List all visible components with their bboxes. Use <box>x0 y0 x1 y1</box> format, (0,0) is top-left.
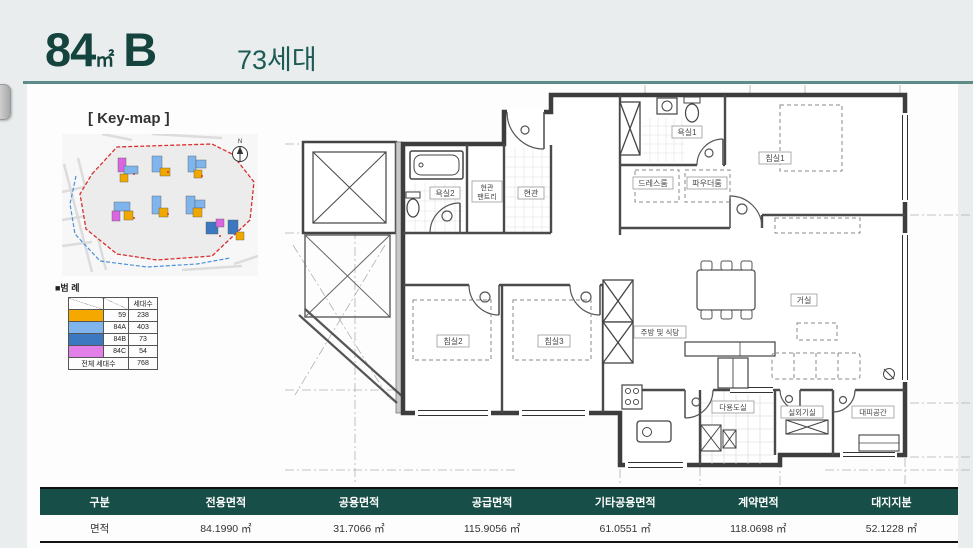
room-label-bedroom3: 침실3 <box>538 335 570 347</box>
room-label-powder-room: 파우더룸 <box>687 177 727 189</box>
households-count: 73세대 <box>237 38 317 77</box>
legend-row-84b: 84B 73 <box>69 334 158 346</box>
legend-col-header: 세대수 <box>129 298 158 310</box>
legend-row-84c: 84C 54 <box>69 346 158 358</box>
keymap-site-plan: N <box>62 134 258 276</box>
area-table: 구분 전용면적 공용면적 공급면적 기타공용면적 계약면적 대지지분 면적 84… <box>40 487 958 543</box>
legend-count: 54 <box>129 346 158 358</box>
svg-text:드레스룸: 드레스룸 <box>638 179 667 188</box>
svg-text:현관: 현관 <box>524 188 539 198</box>
col-header-exclusive-area: 전용면적 <box>159 494 292 510</box>
type-letter: B <box>123 23 157 76</box>
value-land-share: 52.1228 ㎡ <box>825 521 958 536</box>
svg-text:파우더룸: 파우더룸 <box>692 179 721 188</box>
legend-count: 238 <box>129 310 158 322</box>
legend-diagonal-cell2 <box>104 298 129 310</box>
value-supply-area: 115.9056 ㎡ <box>426 521 559 536</box>
legend-swatch-84b <box>69 334 104 346</box>
room-label-dress-room: 드레스룸 <box>633 177 673 189</box>
legend-label: 59 <box>104 310 129 322</box>
value-contract-area: 118.0698 ㎡ <box>692 521 825 536</box>
room-label-bedroom1: 침실1 <box>759 152 791 164</box>
keymap-legend: ■범 례 세대수 59 238 84A 403 84B 73 84C 54 전체 <box>55 281 158 370</box>
legend-label: 84A <box>104 322 129 334</box>
legend-swatch-84c <box>69 346 104 358</box>
legend-row-59: 59 238 <box>69 310 158 322</box>
legend-label: 84B <box>104 334 129 346</box>
legend-diagonal-cell <box>69 298 104 310</box>
area-number: 84 <box>45 23 95 76</box>
room-label-living: 거실 <box>791 294 817 306</box>
svg-text:N: N <box>238 139 242 145</box>
svg-text:주방 및 식당: 주방 및 식당 <box>641 327 680 337</box>
legend-count: 403 <box>129 322 158 334</box>
svg-text:팬트리: 팬트리 <box>477 192 496 201</box>
col-header-category: 구분 <box>40 494 159 510</box>
value-other-common-area: 61.0551 ㎡ <box>559 521 692 536</box>
room-label-kitchen: 주방 및 식당 <box>634 326 686 338</box>
room-label-entry: 현관 <box>518 187 544 199</box>
elevator-core <box>303 142 396 317</box>
legend-table: 세대수 59 238 84A 403 84B 73 84C 54 전체 세대수 … <box>68 297 158 370</box>
page-title: 84㎡B <box>45 22 157 77</box>
legend-total-label: 전체 세대수 <box>69 358 129 370</box>
svg-text:침실3: 침실3 <box>544 336 564 346</box>
room-label-utility: 다용도실 <box>712 401 754 413</box>
col-header-common-area: 공용면적 <box>292 494 425 510</box>
svg-text:현관: 현관 <box>481 183 494 192</box>
room-label-bath2: 욕실2 <box>430 187 460 199</box>
svg-text:욕실2: 욕실2 <box>435 188 455 198</box>
col-header-supply-area: 공급면적 <box>426 494 559 510</box>
floor-plan: 욕실2 현관 팬트리 현관 욕실1 드레스룸 파우더룸 침실1 침 <box>285 85 973 485</box>
carousel-prev-tab[interactable] <box>0 84 11 120</box>
col-header-land-share: 대지지분 <box>825 494 958 510</box>
diagonal-wall <box>299 309 403 403</box>
area-table-header: 구분 전용면적 공용면적 공급면적 기타공용면적 계약면적 대지지분 <box>40 489 958 515</box>
svg-text:거실: 거실 <box>797 295 812 305</box>
room-label-bedroom2: 침실2 <box>437 335 469 347</box>
legend-total-count: 768 <box>129 358 158 370</box>
area-unit: ㎡ <box>95 50 114 71</box>
keymap-title: [ Key-map ] <box>88 110 170 127</box>
row-label-area: 면적 <box>40 521 159 536</box>
room-label-bath1: 욕실1 <box>672 126 702 138</box>
svg-text:실외기실: 실외기실 <box>788 407 816 417</box>
legend-swatch-59 <box>69 310 104 322</box>
dining-table <box>697 261 755 319</box>
legend-row-84a: 84A 403 <box>69 322 158 334</box>
room-label-refuge: 대피공간 <box>852 406 894 418</box>
brochure-page: { "header": { "area_number": "84", "area… <box>0 0 973 548</box>
svg-text:대피공간: 대피공간 <box>859 407 887 417</box>
room-label-ac-room: 실외기실 <box>781 406 823 418</box>
svg-text:욕실1: 욕실1 <box>677 127 697 137</box>
legend-title: ■범 례 <box>55 281 158 294</box>
svg-text:침실1: 침실1 <box>765 153 785 163</box>
value-exclusive-area: 84.1990 ㎡ <box>159 521 292 536</box>
value-common-area: 31.7066 ㎡ <box>292 521 425 536</box>
legend-header-row: 세대수 <box>69 298 158 310</box>
legend-total-row: 전체 세대수 768 <box>69 358 158 370</box>
room-label-entry-pantry: 현관 팬트리 <box>472 181 502 202</box>
area-table-row: 면적 84.1990 ㎡ 31.7066 ㎡ 115.9056 ㎡ 61.055… <box>40 515 958 541</box>
svg-text:다용도실: 다용도실 <box>719 402 747 412</box>
legend-count: 73 <box>129 334 158 346</box>
svg-text:침실2: 침실2 <box>443 336 463 346</box>
col-header-contract-area: 계약면적 <box>692 494 825 510</box>
title-divider-line <box>23 81 973 84</box>
legend-swatch-84a <box>69 322 104 334</box>
legend-label: 84C <box>104 346 129 358</box>
col-header-other-common-area: 기타공용면적 <box>559 494 692 510</box>
